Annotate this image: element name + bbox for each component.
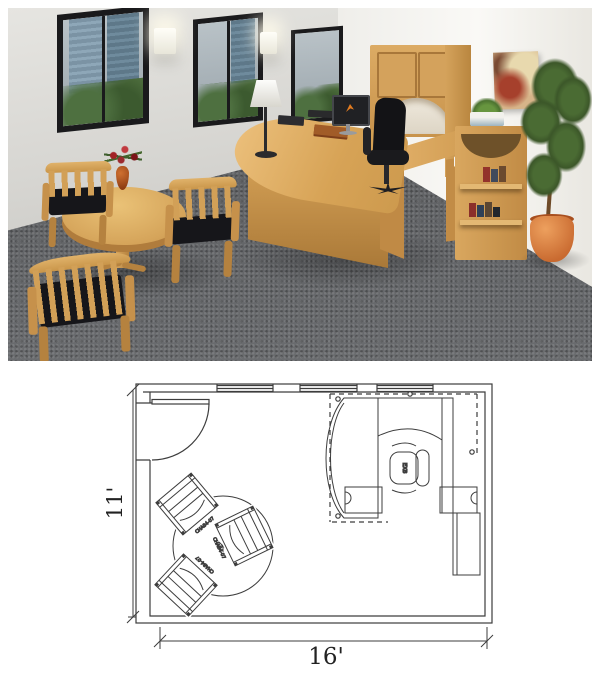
plan-return-desk bbox=[442, 398, 453, 513]
plan-pedestals bbox=[345, 487, 477, 513]
plan-office-chair-label: EX8 bbox=[401, 463, 407, 474]
plan-windows bbox=[217, 385, 433, 393]
plan-bow-desk bbox=[326, 398, 442, 518]
plan-office-chair bbox=[390, 443, 429, 493]
plan-dimension-height bbox=[127, 384, 139, 623]
width-dimension-label: 16' bbox=[308, 644, 344, 670]
plan-guest-chair-2: CHA84-07 bbox=[205, 503, 275, 572]
page: EX8 CHA84-07 bbox=[0, 0, 600, 675]
height-dimension-label: 11' bbox=[103, 487, 127, 520]
plan-bookcase bbox=[453, 513, 480, 575]
plan-hutch-outline bbox=[330, 394, 477, 522]
plan-door bbox=[152, 400, 209, 461]
plan-guest-chair-1: CHA84-07 bbox=[153, 470, 226, 544]
plan-guest-chair-3: CHA84-07 bbox=[152, 545, 225, 619]
floor-plan: EX8 CHA84-07 bbox=[0, 0, 600, 675]
